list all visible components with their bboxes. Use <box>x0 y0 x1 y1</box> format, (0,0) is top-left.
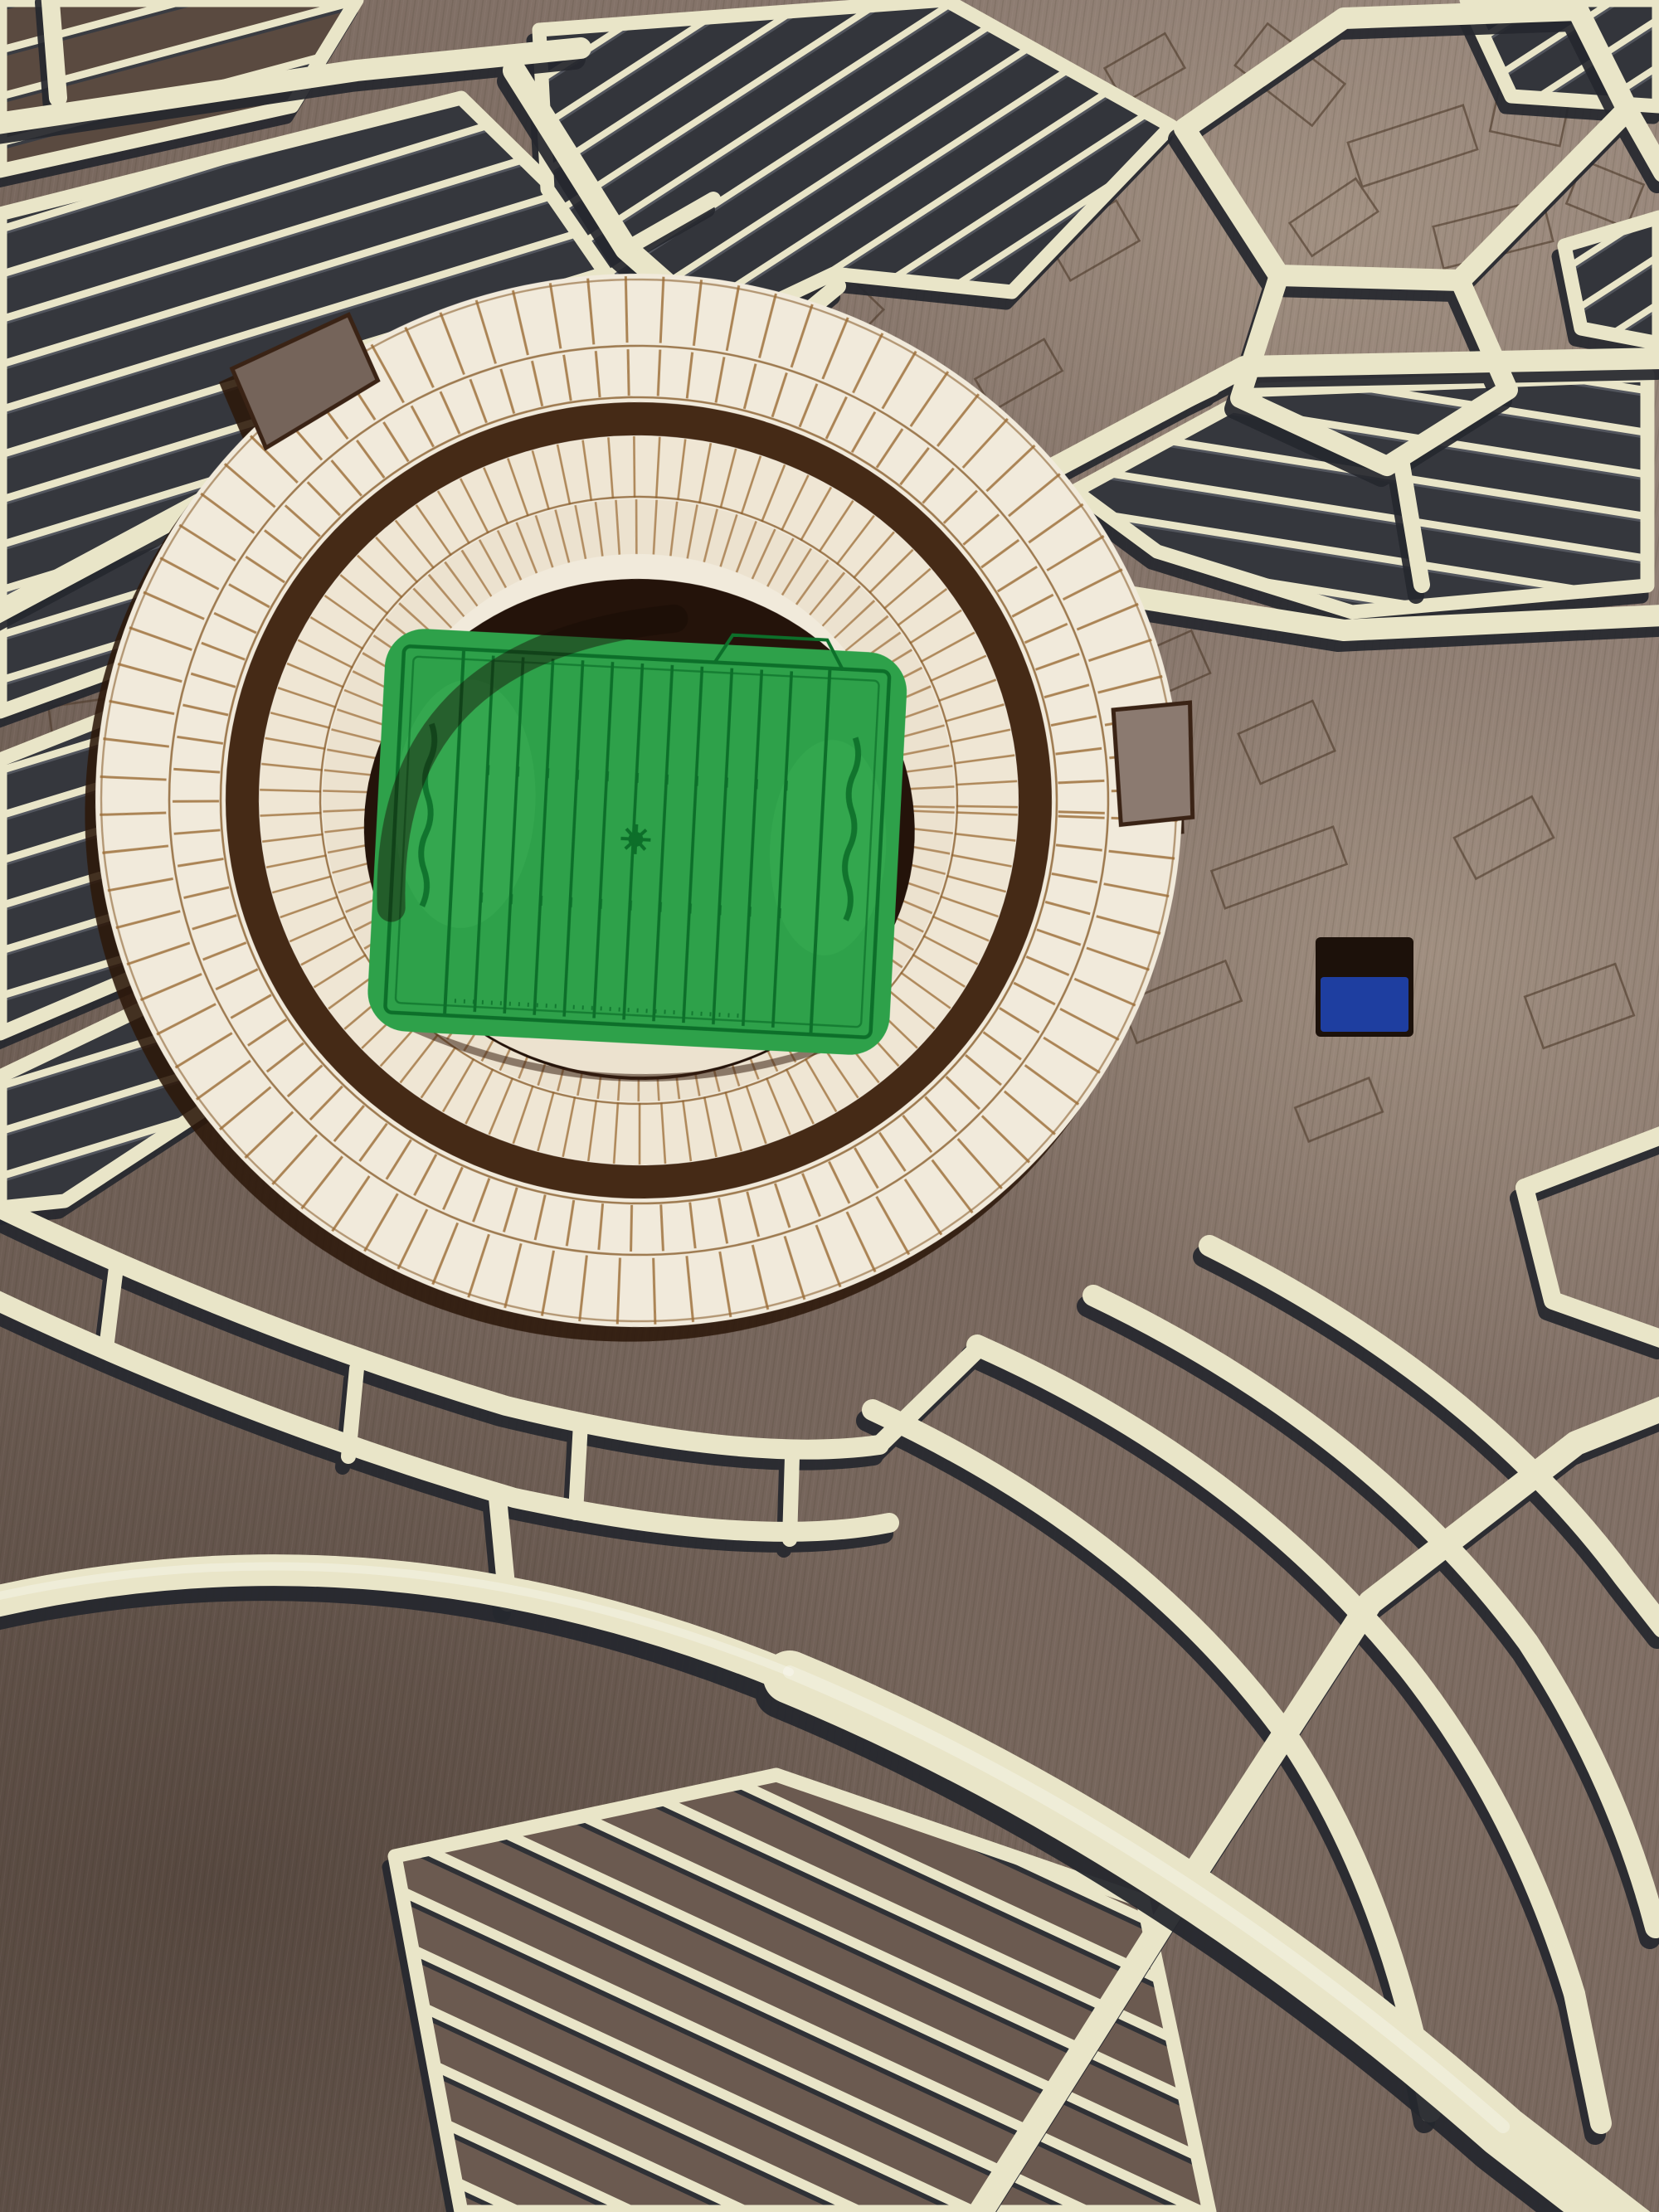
ladder-rung-2 <box>348 1369 357 1456</box>
scene <box>0 0 1659 2212</box>
football-field <box>366 604 910 1057</box>
block-right-edge <box>1564 217 1659 343</box>
deck-notch-right <box>1109 700 1196 827</box>
water-surface <box>1321 977 1408 1032</box>
ladder-rung-1 <box>106 1267 116 1349</box>
wood-map-photo <box>0 0 1659 2212</box>
ladder-rung-3 <box>576 1423 581 1513</box>
ladder-rung-4 <box>790 1456 792 1539</box>
street-top-left-stub <box>50 0 58 98</box>
water-square-hole <box>1316 937 1413 1037</box>
